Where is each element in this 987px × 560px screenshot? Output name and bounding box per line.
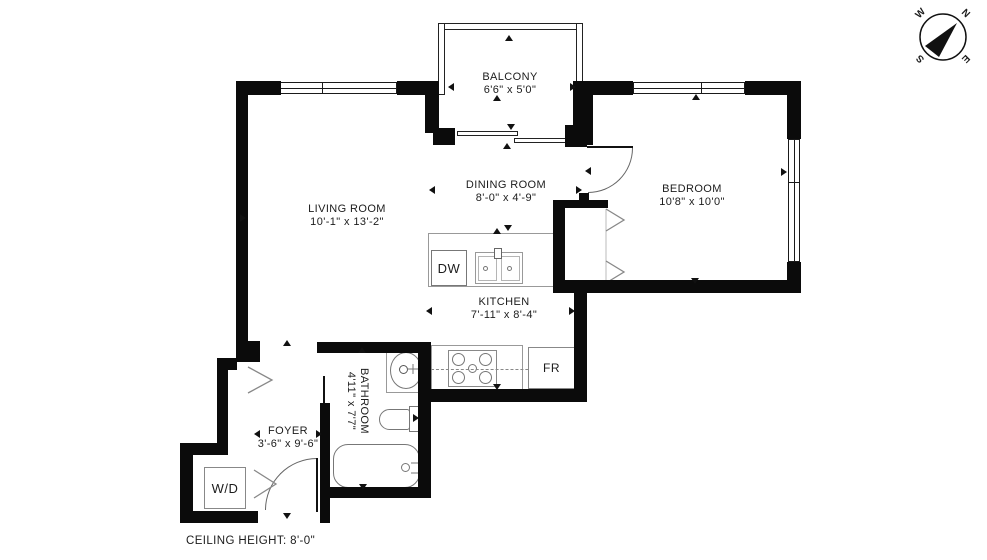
wall-segment <box>236 81 248 342</box>
direction-arrow <box>254 430 260 438</box>
wall-segment <box>433 128 455 145</box>
direction-arrow <box>503 143 511 149</box>
direction-arrow <box>426 307 432 315</box>
wall-segment <box>553 200 565 293</box>
balcony-railing-left <box>438 23 445 95</box>
wall-segment <box>574 290 587 395</box>
balcony-sliding-door-panel <box>457 131 518 136</box>
window-mullion <box>789 182 799 183</box>
direction-arrow <box>413 414 419 422</box>
bedroom-closet-door-chevron <box>606 209 624 231</box>
compass-needle-icon <box>925 23 957 57</box>
foyer-closet-door-chevron <box>248 367 272 393</box>
bathroom-label: BATHROOM 4'11" x 7'7" <box>344 341 370 461</box>
direction-arrow <box>283 513 291 519</box>
direction-arrow <box>493 384 501 390</box>
room-dims: 10'-1" x 13'-2" <box>277 216 417 229</box>
wall-segment <box>180 443 228 455</box>
compass-north: N <box>957 6 974 23</box>
wall-segment <box>320 403 330 523</box>
wall-segment <box>217 358 228 455</box>
toilet-bowl <box>379 409 410 430</box>
bathtub-drain <box>401 463 410 472</box>
balcony-label: BALCONY 6'6" x 5'0" <box>450 71 570 97</box>
stove-burner <box>479 371 492 384</box>
room-dims: 10'8" x 10'0" <box>622 196 762 209</box>
wall-segment <box>418 342 431 498</box>
window-mullion <box>322 83 323 93</box>
direction-arrow <box>359 484 367 490</box>
room-dims: 6'6" x 5'0" <box>450 84 570 97</box>
ceiling-height-note: CEILING HEIGHT: 8'-0" <box>186 535 315 547</box>
window-mullion <box>701 83 702 93</box>
direction-arrow <box>576 186 582 194</box>
entry-door-swing-arc <box>265 458 317 510</box>
wall-segment <box>236 341 260 362</box>
stove-burner <box>452 371 465 384</box>
direction-arrow <box>358 347 366 353</box>
room-name: BALCONY <box>450 71 570 84</box>
wall-segment <box>418 389 587 402</box>
direction-arrow <box>570 83 576 91</box>
direction-arrow <box>569 307 575 315</box>
direction-arrow <box>504 225 512 231</box>
direction-arrow <box>505 35 513 41</box>
dishwasher-label: DW <box>431 250 467 286</box>
direction-arrow <box>507 124 515 130</box>
sink-drain <box>483 266 488 271</box>
floorplan-canvas: BALCONY 6'6" x 5'0" LIVING ROOM 10'-1" x… <box>0 0 987 560</box>
wall-segment <box>317 342 430 353</box>
wall-segment <box>579 193 589 202</box>
washer-dryer-label: W/D <box>204 467 246 509</box>
wall-segment <box>236 81 281 95</box>
bathroom-sink-drain <box>399 365 408 374</box>
wall-segment <box>553 280 801 293</box>
window-pane-line <box>794 140 795 261</box>
room-dims: 4'11" x 7'7" <box>344 341 357 461</box>
direction-arrow <box>283 340 291 346</box>
compass-east: E <box>957 50 974 67</box>
entry-door-leaf <box>316 458 318 512</box>
direction-arrow <box>240 214 246 222</box>
direction-arrow <box>692 94 700 100</box>
room-name: BEDROOM <box>622 183 762 196</box>
direction-arrow <box>316 430 322 438</box>
wall-segment <box>787 81 801 139</box>
direction-arrow <box>429 186 435 194</box>
bedroom-top-window <box>633 82 745 94</box>
balcony-railing-top <box>438 23 583 30</box>
wall-segment <box>425 81 439 133</box>
sink-faucet <box>494 248 502 259</box>
living-room-window <box>280 82 397 94</box>
room-name: LIVING ROOM <box>277 203 417 216</box>
direction-arrow <box>493 95 501 101</box>
stove-burner <box>452 353 465 366</box>
direction-arrow <box>585 167 591 175</box>
wall-segment <box>320 487 431 498</box>
fridge-label: FR <box>528 347 575 389</box>
wall-segment <box>593 81 633 95</box>
room-name: BATHROOM <box>357 341 370 461</box>
direction-arrow <box>691 278 699 284</box>
window-pane-line <box>634 88 744 89</box>
direction-arrow <box>448 83 454 91</box>
kitchen-label: KITCHEN 7'-11" x 8'-4" <box>434 296 574 322</box>
room-name: KITCHEN <box>434 296 574 309</box>
bedroom-right-window <box>788 139 800 262</box>
living-room-label: LIVING ROOM 10'-1" x 13'-2" <box>277 203 417 229</box>
sink-drain <box>507 266 512 271</box>
compass-south: S <box>913 50 930 67</box>
wall-segment <box>180 511 258 523</box>
compass-circle <box>920 14 966 60</box>
wall-segment <box>565 125 587 147</box>
window-pane-line <box>281 88 396 89</box>
direction-arrow <box>781 168 787 176</box>
room-dims: 7'-11" x 8'-4" <box>434 309 574 322</box>
stove-burner <box>479 353 492 366</box>
compass-west: W <box>913 6 930 23</box>
direction-arrow <box>493 228 501 234</box>
bedroom-label: BEDROOM 10'8" x 10'0" <box>622 183 762 209</box>
bathroom-door-leaf <box>323 376 325 404</box>
bedroom-door-leaf <box>587 146 633 148</box>
room-name: DINING ROOM <box>436 179 576 192</box>
